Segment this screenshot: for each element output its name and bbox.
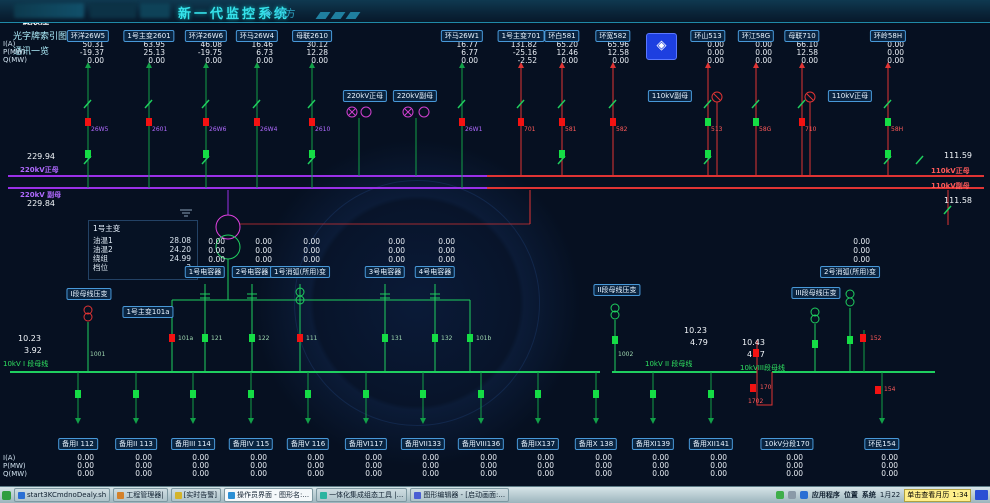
equipment-id-tag: 1702 [748, 399, 763, 405]
voltage-value: 111.58 [944, 196, 972, 205]
voltage-value: 229.94 [27, 152, 55, 161]
tray-icon[interactable] [788, 491, 796, 499]
breaker[interactable] [559, 118, 565, 126]
feeder-reactive-power: 0.00 [613, 470, 669, 478]
breaker[interactable] [382, 334, 388, 342]
feeder-reactive-power: 0.00 [747, 470, 803, 478]
feeder-label[interactable]: 环民154 [864, 438, 899, 450]
bus-name-text: 110kV正母 [931, 166, 970, 176]
equipment-id-tag: 101b [476, 336, 491, 342]
capacitor-reactive-power: 0.00 [810, 256, 870, 264]
equipment-id-tag: 58H [891, 127, 903, 133]
taskbar-menu[interactable]: 应用程序 [812, 490, 840, 500]
pt-label[interactable]: III段母线压变 [791, 287, 840, 299]
equipment-id-tag: 26W5 [91, 127, 108, 133]
feeder-label[interactable]: 10kV分段170 [760, 438, 813, 450]
equipment-id-tag: 581 [565, 127, 576, 133]
feeder-reactive-power: 0.00 [842, 470, 898, 478]
voltage-value: 10.23 [18, 334, 41, 343]
bus-label[interactable]: 110kV正母 [828, 90, 872, 102]
capacitor-active-power: 0.00 [260, 247, 320, 255]
bus-label[interactable]: 220kV副母 [393, 90, 437, 102]
equipment-id-tag: 121 [211, 336, 222, 342]
title-bar: 新一代监控系统 ◈ 四方 [0, 0, 990, 23]
breaker[interactable] [203, 118, 209, 126]
taskbar-window-title: 一体化集成组态工具 |... [329, 490, 403, 500]
breaker[interactable] [885, 118, 891, 126]
capacitor-label[interactable]: 2号电容器 [232, 266, 272, 278]
taskbar-window-title: 工程管理器| [126, 490, 163, 500]
taskbar-window-title: [实时告警] [184, 490, 217, 500]
scada-screen: 新一代监控系统 ◈ 四方 画面索引图 一键顺控 光字牌索引图 通讯一览 I(A)… [0, 0, 990, 503]
feeder-label[interactable]: 母联2610 [292, 30, 332, 42]
equipment-id-tag: 132 [441, 336, 452, 342]
breaker[interactable] [650, 390, 656, 398]
breaker[interactable] [559, 150, 565, 158]
measure-label-reactive-power: Q(MW) [3, 56, 27, 64]
measure-label-current: I(A) [3, 454, 15, 462]
equipment-id-tag: 582 [616, 127, 627, 133]
background-watermark [252, 138, 582, 468]
breaker[interactable] [612, 336, 618, 344]
equipment-id-tag: 26W1 [465, 127, 482, 133]
breaker[interactable] [133, 390, 139, 398]
feeder-reactive-power: 0.00 [498, 470, 554, 478]
bus-section-name: 10kV II 段母线 [645, 359, 692, 369]
breaker[interactable] [309, 118, 315, 126]
feeder-reactive-power: 0.00 [153, 470, 209, 478]
breaker[interactable] [535, 390, 541, 398]
feeder-reactive-power: 0.00 [38, 470, 94, 478]
taskbar-window-button[interactable]: start3KCmdnoDealy.sh [14, 488, 110, 502]
taskbar-window-button[interactable]: 操作员界面 - 图形名:... [224, 488, 313, 502]
taskbar-menu[interactable]: 位置 [844, 490, 858, 500]
taskbar-menu[interactable]: 系统 [862, 490, 876, 500]
breaker[interactable] [75, 390, 81, 398]
transformer-param: 油温2 [93, 245, 113, 254]
breaker[interactable] [875, 386, 881, 394]
bus-name-text: 110kV副母 [931, 181, 970, 191]
taskbar-window-title: 操作员界面 - 图形名:... [237, 490, 309, 500]
feeder-reactive-power: 0.00 [268, 57, 328, 65]
breaker[interactable] [753, 118, 759, 126]
feeder-reactive-power: 0.00 [44, 57, 104, 65]
equipment-id-tag: 131 [391, 336, 402, 342]
bus-label[interactable]: 110kV副母 [648, 90, 692, 102]
breaker[interactable] [705, 118, 711, 126]
measure-label-active-power: P(MW) [3, 462, 26, 470]
feeder-label[interactable]: 母联710 [784, 30, 819, 42]
equipment-id-tag: 170 [760, 385, 771, 391]
taskbar-date[interactable]: 1月22 [880, 490, 900, 500]
bus-label[interactable]: 220kV正母 [343, 90, 387, 102]
measure-label-current: I(A) [3, 40, 15, 48]
capacitor-reactive-power: 0.00 [395, 256, 455, 264]
pt-label[interactable]: 1号主变101a [122, 306, 173, 318]
breaker[interactable] [146, 118, 152, 126]
breaker[interactable] [860, 334, 866, 342]
breaker[interactable] [799, 118, 805, 126]
blurred-logo [140, 3, 170, 18]
breaker[interactable] [432, 334, 438, 342]
breaker[interactable] [305, 390, 311, 398]
voltage-value: 229.84 [27, 199, 55, 208]
feeder-reactive-power: 0.00 [556, 470, 612, 478]
breaker[interactable] [750, 384, 756, 392]
feeder-reactive-power: 0.00 [569, 57, 629, 65]
breaker[interactable] [248, 390, 254, 398]
window-icon [414, 492, 421, 499]
breaker[interactable] [190, 390, 196, 398]
start-menu-icon[interactable] [2, 491, 11, 500]
equipment-id-tag: 26W4 [260, 127, 277, 133]
bus-section-name: 10kVIII段母线 [740, 363, 785, 373]
capacitor-label[interactable]: 4号电容器 [415, 266, 455, 278]
feeder-label[interactable]: 备用X 138 [575, 438, 617, 450]
feeder-reactive-power: 0.00 [213, 57, 273, 65]
breaker[interactable] [254, 118, 260, 126]
breaker[interactable] [812, 340, 818, 348]
decorative-slashes [318, 12, 358, 19]
bus-section-name: 10kV I 段母线 [3, 359, 48, 369]
feeder-label[interactable]: 环宽582 [595, 30, 630, 42]
equipment-id-tag: 122 [258, 336, 269, 342]
pt-label[interactable]: I段母线压变 [66, 288, 111, 300]
taskbar: start3KCmdnoDealy.sh 工程管理器| [实时告警] 操作员界面… [0, 486, 990, 503]
taskbar-window-button[interactable]: 图形编辑器 - [启动画面:... [410, 488, 509, 502]
taskbar-end-icon[interactable] [975, 490, 988, 500]
feeder-reactive-power: 0.00 [671, 470, 727, 478]
pt-label[interactable]: II段母线压变 [593, 284, 640, 296]
tray-icon[interactable] [800, 491, 808, 499]
capacitor-reactive-power: 0.00 [260, 256, 320, 264]
feeder-reactive-power: 0.00 [96, 470, 152, 478]
capacitor-current: 0.00 [260, 238, 320, 246]
feeder-label[interactable]: 备用II 113 [115, 438, 157, 450]
feeder-reactive-power: 0.00 [105, 57, 165, 65]
feeder-reactive-power: 0.00 [268, 470, 324, 478]
equipment-id-tag: 154 [884, 387, 895, 393]
feeder-label[interactable]: 备用IV 115 [229, 438, 273, 450]
capacitor-label[interactable]: 1号消弧(所用)变 [270, 266, 330, 278]
feeder-reactive-power: 0.00 [211, 470, 267, 478]
equipment-id-tag: 1002 [618, 352, 633, 358]
window-icon [117, 492, 124, 499]
equipment-id-tag: 101a [178, 336, 193, 342]
feeder-reactive-power: 0.00 [441, 470, 497, 478]
capacitor-label[interactable]: 2号消弧(所用)变 [820, 266, 880, 278]
voltage-value: 10.43 [742, 338, 765, 347]
transformer-name: 1号主变 [89, 221, 197, 236]
breaker[interactable] [169, 334, 175, 342]
breaker[interactable] [478, 390, 484, 398]
equipment-id-tag: 26W6 [209, 127, 226, 133]
voltage-value: 111.59 [944, 151, 972, 160]
taskbar-window-button[interactable]: 一体化集成组态工具 |... [316, 488, 407, 502]
feeder-reactive-power: 0.00 [383, 470, 439, 478]
feeder-label[interactable]: 环岭58H [870, 30, 906, 42]
feeder-label[interactable]: 备用VII133 [401, 438, 445, 450]
system-tray: 应用程序 位置 系统 1月22 单击查看月历 1:34 [776, 489, 988, 502]
equipment-id-tag: 58G [759, 127, 771, 133]
window-icon [228, 492, 235, 499]
voltage-value: 10.23 [684, 326, 707, 335]
capacitor-active-power: 0.00 [395, 247, 455, 255]
taskbar-window-title: 图形编辑器 - [启动画面:... [423, 490, 505, 500]
feeder-reactive-power: 0.00 [418, 57, 478, 65]
feeder-label[interactable]: 备用VI117 [345, 438, 387, 450]
feeder-label[interactable]: 备用XII141 [689, 438, 733, 450]
window-icon [18, 492, 25, 499]
taskbar-window-button[interactable]: 工程管理器| [113, 488, 167, 502]
capacitor-current: 0.00 [810, 238, 870, 246]
breaker[interactable] [202, 334, 208, 342]
blurred-logo [14, 3, 84, 18]
breaker[interactable] [518, 118, 524, 126]
breaker[interactable] [363, 390, 369, 398]
breaker[interactable] [753, 349, 759, 357]
transformer-param: 油温1 [93, 236, 113, 245]
calendar-tooltip: 单击查看月历 1:34 [904, 489, 971, 502]
breaker[interactable] [85, 150, 91, 158]
taskbar-window-button[interactable]: [实时告警] [171, 488, 221, 502]
vendor-name: 四方 [275, 5, 295, 20]
feeder-reactive-power: 0.00 [844, 57, 904, 65]
feeder-label[interactable]: 备用I 112 [58, 438, 98, 450]
feeder-label[interactable]: 备用IX137 [517, 438, 559, 450]
equipment-id-tag: 513 [711, 127, 722, 133]
equipment-id-tag: 152 [870, 336, 881, 342]
feeder-label[interactable]: 备用V 116 [287, 438, 329, 450]
breaker[interactable] [847, 336, 853, 344]
transformer-param: 绕组 [93, 254, 108, 263]
measure-label-active-power: P(MW) [3, 48, 26, 56]
capacitor-current: 0.00 [395, 238, 455, 246]
equipment-id-tag: 1001 [90, 352, 105, 358]
breaker[interactable] [593, 390, 599, 398]
feeder-reactive-power: 0.00 [758, 57, 818, 65]
breaker[interactable] [708, 390, 714, 398]
breaker[interactable] [309, 150, 315, 158]
compass-navigator-icon[interactable]: ◈ [646, 33, 677, 60]
equipment-id-tag: 701 [524, 127, 535, 133]
breaker[interactable] [467, 334, 473, 342]
breaker[interactable] [885, 150, 891, 158]
voltage-value: 3.92 [24, 346, 42, 355]
feeder-reactive-power: 0.00 [326, 470, 382, 478]
taskbar-window-title: start3KCmdnoDealy.sh [27, 491, 106, 499]
window-icon [175, 492, 182, 499]
compass-glyph-icon: ◈ [657, 38, 667, 53]
breaker[interactable] [420, 390, 426, 398]
equipment-id-tag: 710 [805, 127, 816, 133]
taskbar-clock[interactable]: 1:34 [952, 490, 968, 501]
equipment-id-tag: 2610 [315, 127, 330, 133]
breaker[interactable] [610, 118, 616, 126]
feeder-label[interactable]: 备用III 114 [171, 438, 215, 450]
breaker[interactable] [85, 118, 91, 126]
window-icon [320, 492, 327, 499]
breaker[interactable] [459, 118, 465, 126]
measure-label-reactive-power: Q(MW) [3, 470, 27, 478]
breaker[interactable] [249, 334, 255, 342]
equipment-id-tag: 111 [306, 336, 317, 342]
capacitor-label[interactable]: 1号电容器 [185, 266, 225, 278]
blurred-logo [90, 3, 136, 18]
breaker[interactable] [297, 334, 303, 342]
bus-name-text: 220kV正母 [20, 165, 59, 175]
vendor-logo: ◈ 四方 [264, 5, 295, 20]
feeder-label[interactable]: 备用XI139 [632, 438, 674, 450]
vendor-diamond-icon: ◈ [264, 6, 272, 19]
transformer-row: 档位 3 [89, 263, 197, 272]
tray-icon[interactable] [776, 491, 784, 499]
feeder-label[interactable]: 备用VIII136 [458, 438, 504, 450]
breaker[interactable] [203, 150, 209, 158]
capacitor-label[interactable]: 3号电容器 [365, 266, 405, 278]
capacitor-active-power: 0.00 [810, 247, 870, 255]
voltage-value: 4.79 [690, 338, 708, 347]
equipment-id-tag: 2601 [152, 127, 167, 133]
feeder-label[interactable]: 环洋26W5 [67, 30, 109, 42]
breaker[interactable] [705, 150, 711, 158]
transformer-param: 档位 [93, 263, 108, 272]
calendar-tooltip-text: 单击查看月历 [907, 490, 949, 501]
